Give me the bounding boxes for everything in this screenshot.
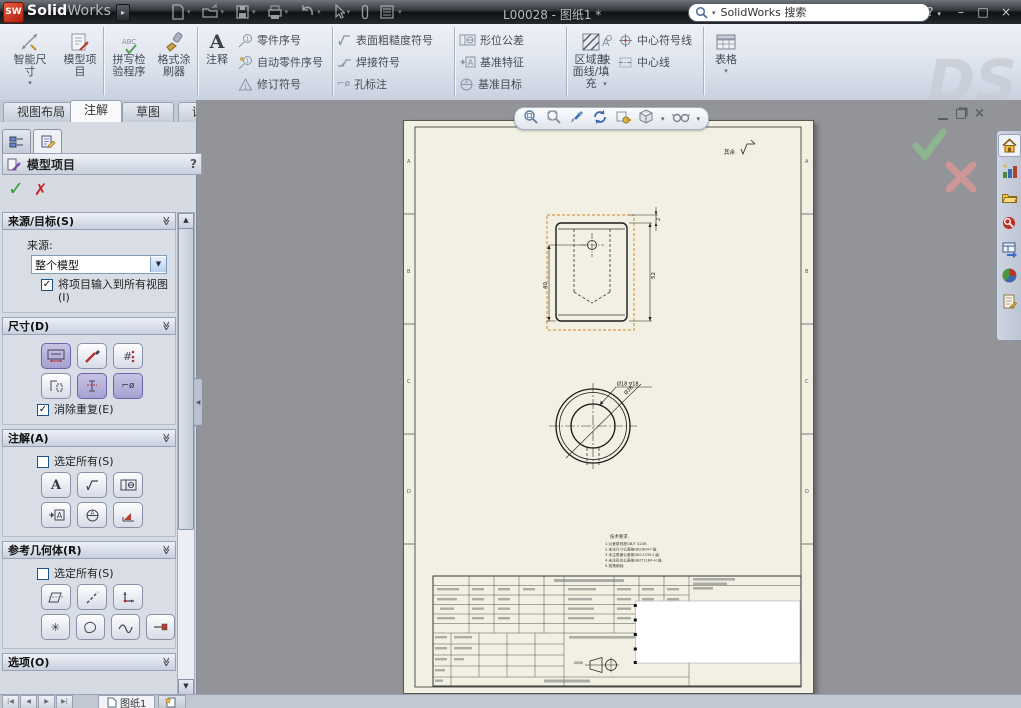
note-button[interactable]: A 注释 [200, 27, 234, 99]
dimension-lines [546, 207, 658, 321]
hole-callout-label: 孔标注 [354, 76, 387, 92]
solidworks-logo-icon: SW [3, 2, 24, 23]
dimension-52[interactable]: 52 [651, 272, 657, 279]
measure-button[interactable] [361, 4, 369, 20]
datum-feature-icon: A [459, 55, 476, 69]
titleblock-white-area[interactable] [634, 601, 800, 664]
planes-button[interactable] [41, 584, 71, 610]
section-options[interactable]: 选项(O)≫ [2, 653, 176, 671]
weld-symbol-button[interactable]: 焊接符号 [337, 51, 433, 73]
title-block[interactable] [433, 576, 801, 686]
svg-text:1: 1 [246, 36, 250, 43]
panel-splitter-handle[interactable]: ◀ [193, 378, 203, 426]
last-sheet-button[interactable]: ▶| [56, 695, 73, 708]
dimension-arrows [547, 212, 657, 322]
sheet-tab-bar: |◀ ◀ ▶ ▶| 图纸1 [0, 694, 1021, 708]
format-painter-label: 格式涂刷器 [155, 54, 193, 78]
collapse-chevron-icon[interactable]: ≫ [160, 433, 170, 442]
ribbon-separator [454, 27, 455, 95]
property-manager-panel: 模型项目 ? ✓ ✗ 来源/目标(S)≫ 来源: 整个模型 ▼ ✓将项目输入到所… [0, 122, 197, 694]
block-icon: A [596, 30, 614, 54]
solidworks-window: SW SolidWorks ▸ ▾ ▾ ▾ ▾ ▾ ▾ ▾ L00028 - 图… [0, 0, 1021, 708]
child-window-controls: × [938, 108, 985, 120]
model-items-button[interactable]: 模型项目 [57, 27, 103, 99]
pm-cancel-button[interactable]: ✗ [34, 180, 47, 199]
options-button[interactable]: ▾ [380, 4, 402, 20]
not-marked-dimensions-button[interactable] [77, 343, 107, 369]
finish-note-text: 其余 [724, 148, 736, 156]
pm-ok-button[interactable]: ✓ [8, 178, 24, 200]
next-sheet-button[interactable]: ▶ [38, 695, 55, 708]
projection-symbol [574, 658, 619, 673]
zoom-to-area-icon[interactable] [546, 109, 562, 128]
auto-balloon-label: 自动零件序号 [257, 54, 323, 70]
spell-checker-label: 拼写检验程序 [109, 54, 149, 78]
surface-finish-note[interactable]: 其余 [724, 140, 755, 156]
datum-group: 形位公差 A基准特征 A基准目标 [459, 29, 524, 95]
datums-button[interactable]: A [41, 502, 71, 528]
center-mark-label: 中心符号线 [637, 32, 692, 48]
rotate-view-icon[interactable] [592, 109, 608, 128]
previous-view-icon[interactable] [569, 109, 585, 128]
app-logo-text: SolidWorks [27, 3, 111, 19]
ribbon-separator [103, 27, 104, 95]
section-title: 尺寸(D) [8, 318, 49, 334]
zone-letter: B [805, 269, 809, 275]
ribbon-separator [703, 27, 704, 95]
zone-letter: A [805, 159, 809, 165]
geometric-tolerance-icon [459, 33, 476, 47]
annotations-select-all-label: 选定所有(S) [54, 455, 114, 468]
symbol-group: 表面粗糙度符号 焊接符号 ⌐ø孔标注 [337, 29, 433, 95]
help-button[interactable]: ? ▾ [925, 4, 943, 20]
section-dimensions[interactable]: 尺寸(D)≫ [2, 317, 176, 335]
axes-button[interactable] [77, 584, 107, 610]
section-annotations-body: ✓选定所有(S) A A A [2, 447, 176, 537]
annotations-select-all-checkbox[interactable]: ✓ [37, 456, 49, 468]
import-all-views-checkbox[interactable]: ✓ [41, 279, 53, 291]
instance-counts-button[interactable]: # [113, 343, 143, 369]
notes-button[interactable]: A [41, 472, 71, 498]
section-source-body: 来源: 整个模型 ▼ ✓将项目输入到所有视图(I) [2, 230, 176, 313]
add-sheet-icon [165, 697, 179, 708]
dimension-40[interactable]: 40 [543, 282, 549, 289]
svg-text:A: A [90, 510, 94, 516]
surface-finish-button[interactable]: 表面粗糙度符号 [337, 29, 433, 51]
section-dimensions-body: # ⌐ø ✓消除重复(E) [2, 335, 176, 425]
zone-letter: D [407, 489, 411, 495]
confirm-cancel-button[interactable] [942, 158, 980, 199]
refgeo-select-all-label: 选定所有(S) [54, 567, 114, 580]
zone-letter: D [805, 489, 809, 495]
format-painter-icon [163, 30, 185, 54]
tables-icon [715, 30, 737, 54]
revision-symbol-icon: 1 [238, 77, 253, 92]
first-sheet-button[interactable]: |◀ [2, 695, 19, 708]
surfaces-button[interactable] [76, 614, 105, 640]
note-icon: A [210, 30, 225, 54]
section-refgeo-body: ✓选定所有(S) ✳ [2, 559, 176, 649]
centerline-label: 中心线 [637, 54, 670, 70]
geometric-tolerances-button[interactable] [113, 472, 143, 498]
note-line: 技术要求. [610, 533, 629, 540]
note-label: 注释 [202, 54, 232, 66]
geometric-tolerance-button[interactable]: 形位公差 [459, 29, 524, 51]
pm-header: 模型项目 ? [2, 153, 202, 175]
scroll-up-icon[interactable]: ▲ [178, 213, 194, 229]
pm-help-button[interactable]: ? [190, 157, 197, 171]
logo-light: Works [67, 3, 111, 19]
smart-dimension-icon [19, 30, 41, 54]
dropdown-arrow-icon[interactable]: ▼ [150, 257, 166, 272]
sheet-icon [107, 697, 117, 708]
balloon-label: 零件序号 [257, 32, 301, 48]
surface-finish-label: 表面粗糙度符号 [356, 32, 433, 48]
new-document-button[interactable]: ▾ [170, 4, 191, 20]
model-items-label: 模型项目 [61, 54, 99, 78]
menu-expand-arrow[interactable]: ▸ [116, 4, 130, 22]
pm-title: 模型项目 [27, 156, 75, 173]
front-view[interactable]: 40 52 2 [543, 207, 662, 330]
tables-label: 表格 [715, 54, 737, 66]
drawing-sheet[interactable]: A B C D A B C D 其余 [403, 120, 814, 694]
ribbon-separator [566, 27, 567, 95]
block-caret[interactable]: ▾ [603, 80, 607, 88]
svg-text:A: A [468, 58, 474, 67]
save-button[interactable]: ▾ [235, 4, 256, 20]
spell-checker-icon: ABC [122, 30, 136, 54]
refgeo-select-all-checkbox[interactable]: ✓ [37, 568, 49, 580]
svg-text:1: 1 [244, 84, 248, 91]
title-bar: SW SolidWorks ▸ ▾ ▾ ▾ ▾ ▾ ▾ ▾ L00028 - 图… [0, 0, 1021, 24]
curves-button[interactable] [111, 614, 140, 640]
datum-target-button[interactable]: A基准目标 [459, 73, 524, 95]
tab-sketch[interactable]: 草图 [122, 102, 174, 122]
hole-callout-button[interactable]: ⌐ø孔标注 [337, 73, 433, 95]
eliminate-duplicates-label: 消除重复(E) [54, 403, 114, 416]
search-icon [695, 6, 709, 20]
search-box[interactable]: ▾ [688, 3, 930, 22]
search-input[interactable] [719, 5, 923, 20]
cosmetic-threads-button[interactable] [113, 502, 143, 528]
note-line: 3.未注角度公差按GB11335-f 级. [605, 552, 660, 557]
prev-sheet-button[interactable]: ◀ [20, 695, 37, 708]
format-painter-button[interactable]: 格式涂刷器 [152, 27, 196, 99]
centerline-icon [618, 55, 633, 70]
circular-view[interactable]: Ø18 ∇18 Ø38 [549, 381, 652, 470]
zone-letter: A [407, 159, 411, 165]
hide-show-caret[interactable]: ▾ [697, 115, 701, 123]
open-button[interactable]: ▾ [202, 4, 225, 20]
tables-caret[interactable]: ▾ [724, 67, 728, 75]
command-manager: 智能尺寸 ▾ 模型项目 ABC 拼写检验程序 格式涂刷器 A 注释 1零件序号 … [0, 24, 1021, 101]
centerline-group: 中心符号线 中心线 [618, 29, 692, 73]
weld-symbol-label: 焊接符号 [356, 54, 400, 70]
3d-drawing-view-icon[interactable] [615, 109, 631, 128]
zone-letter: C [805, 379, 809, 385]
smart-dimension-button[interactable]: 智能尺寸 ▾ [5, 27, 55, 99]
zone-letter: C [407, 379, 411, 385]
search-scope-arrow[interactable]: ▾ [712, 9, 716, 17]
solidworks-resources-icon[interactable] [998, 134, 1021, 157]
section-annotations[interactable]: 注解(A)≫ [2, 429, 176, 447]
centerline-button[interactable]: 中心线 [618, 51, 692, 73]
svg-text:A: A [602, 36, 610, 49]
tab-view-layout[interactable]: 视图布局 [3, 102, 79, 122]
heads-up-toolbar: ▾ ▾ [514, 107, 709, 130]
panel-tabs [2, 129, 62, 153]
source-dropdown-value: 整个模型 [32, 257, 150, 273]
collapse-chevron-icon[interactable]: ≫ [160, 321, 170, 330]
source-label: 来源: [27, 237, 175, 253]
svg-text:1: 1 [246, 58, 250, 65]
section-title: 来源/目标(S) [8, 213, 74, 229]
custom-properties-icon[interactable] [998, 290, 1021, 313]
child-close-button[interactable]: × [974, 109, 985, 119]
logo-bold: Solid [27, 3, 67, 19]
hole-wizard-profiles-button[interactable] [77, 373, 107, 399]
section-reference-geometry[interactable]: 参考几何体(R)≫ [2, 541, 176, 559]
collapse-chevron-icon[interactable]: ≫ [160, 657, 170, 666]
spell-checker-button[interactable]: ABC 拼写检验程序 [106, 27, 152, 99]
pm-body: 来源/目标(S)≫ 来源: 整个模型 ▼ ✓将项目输入到所有视图(I) 尺寸(D… [2, 212, 176, 694]
collapse-chevron-icon[interactable]: ≫ [160, 216, 170, 225]
note-line: 2.未注尺寸公差按GB1804-f 级. [605, 547, 658, 552]
datum-feature-label: 基准特征 [480, 54, 524, 70]
smart-dimension-caret[interactable]: ▾ [28, 79, 32, 87]
scroll-thumb[interactable] [178, 228, 194, 530]
ribbon-separator [197, 27, 198, 95]
balloon-icon: 1 [238, 33, 253, 48]
quick-access-toolbar: ▾ ▾ ▾ ▾ ▾ ▾ ▾ [170, 4, 402, 20]
tab-annotation[interactable]: 注解 [70, 100, 122, 122]
section-title: 注解(A) [8, 430, 49, 446]
section-title: 参考几何体(R) [8, 542, 82, 558]
import-all-views-label: 将项目输入到所有视图(I) [58, 278, 169, 304]
search-palette-icon[interactable] [998, 212, 1021, 235]
section-title: 选项(O) [8, 654, 49, 670]
balloon-button[interactable]: 1零件序号 [238, 29, 323, 51]
featuremanager-tree-tab[interactable] [2, 129, 31, 153]
datum-target-icon: A [459, 77, 474, 92]
collapse-chevron-icon[interactable]: ≫ [160, 545, 170, 554]
hole-callout-icon: ⌐ø [337, 79, 350, 89]
hole-callout-pm-button[interactable]: ⌐ø [113, 373, 143, 399]
origins-button[interactable] [113, 584, 143, 610]
section-source-destination[interactable]: 来源/目标(S)≫ [2, 212, 176, 230]
marked-dimensions-button[interactable] [41, 343, 71, 369]
technical-notes[interactable]: 技术要求. 1.公差原则按GB/T 4249. 2.未注尺寸公差按GB1804-… [605, 533, 663, 568]
block-button[interactable]: A 块 ▾ [593, 27, 617, 99]
child-minimize-button[interactable] [938, 108, 948, 120]
view-palette-icon[interactable] [998, 238, 1021, 261]
zone-letter: B [407, 269, 411, 275]
note-line: 5.锐角倒钝. [605, 563, 624, 568]
center-mark-icon [618, 33, 633, 48]
pm-scrollbar[interactable]: ▲ ▼ [177, 212, 195, 696]
view-selection-border [547, 215, 634, 330]
dimension-2[interactable]: 2 [656, 218, 662, 221]
zoom-to-fit-icon[interactable] [523, 109, 539, 128]
geometric-tolerance-label: 形位公差 [480, 32, 524, 48]
hole-wizard-locations-button[interactable] [41, 373, 71, 399]
datum-target-label: 基准目标 [478, 76, 522, 92]
ribbon-separator [332, 27, 333, 95]
source-dropdown[interactable]: 整个模型 ▼ [31, 255, 167, 274]
points-button[interactable]: ✳ [41, 614, 70, 640]
balloon-group: 1零件序号 1自动零件序号 1修订符号 [238, 29, 323, 95]
datum-targets-button[interactable]: A [77, 502, 107, 528]
file-explorer-icon[interactable] [998, 186, 1021, 209]
auto-balloon-button[interactable]: 1自动零件序号 [238, 51, 323, 73]
child-restore-button[interactable] [956, 109, 966, 119]
add-sheet-tab[interactable] [158, 695, 186, 708]
document-title: L00028 - 图纸1 * [503, 6, 601, 23]
propertymanager-tab[interactable] [33, 129, 62, 153]
print-button[interactable]: ▾ [267, 4, 289, 20]
svg-text:A: A [56, 511, 62, 520]
smart-dimension-label: 智能尺寸 [11, 54, 49, 78]
close-button[interactable]: × [997, 4, 1015, 20]
undo-button[interactable]: ▾ [299, 4, 321, 20]
view-orientation-icon[interactable] [638, 109, 654, 128]
sheet-tab-label: 图纸1 [120, 695, 146, 708]
model-items-icon [69, 30, 91, 54]
appearances-icon[interactable] [998, 264, 1021, 287]
revision-symbol-button[interactable]: 1修订符号 [238, 73, 323, 95]
task-pane [996, 130, 1021, 341]
hide-show-items-icon[interactable] [672, 110, 690, 127]
svg-text:#: # [123, 350, 132, 363]
revision-symbol-label: 修订符号 [257, 76, 301, 92]
model-items-small-icon [7, 157, 22, 172]
block-label: 块 [600, 54, 611, 66]
routing-points-button[interactable] [146, 614, 175, 640]
datum-feature-button[interactable]: A基准特征 [459, 51, 524, 73]
weld-symbol-icon [337, 55, 352, 70]
auto-balloon-icon: 1 [238, 55, 253, 70]
minimize-button[interactable]: – [952, 4, 970, 20]
eliminate-duplicates-checkbox[interactable]: ✓ [37, 404, 49, 416]
center-mark-button[interactable]: 中心符号线 [618, 29, 692, 51]
sheet-tab-sheet1[interactable]: 图纸1 [98, 695, 155, 708]
tables-button[interactable]: 表格 ▾ [708, 27, 744, 99]
select-button[interactable]: ▾ [332, 4, 351, 20]
maximize-button[interactable]: □ [974, 4, 992, 20]
note-line: 1.公差原则按GB/T 4249. [605, 541, 648, 546]
scroll-down-icon[interactable]: ▼ [178, 679, 194, 695]
note-line: 4.未注形位公差按GB/T1184-H 级. [605, 558, 663, 563]
svg-text:A: A [465, 79, 469, 85]
surface-finish-pm-button[interactable] [77, 472, 107, 498]
view-orientation-caret[interactable]: ▾ [661, 115, 665, 123]
design-library-icon[interactable] [998, 160, 1021, 183]
surface-finish-icon [337, 33, 352, 48]
